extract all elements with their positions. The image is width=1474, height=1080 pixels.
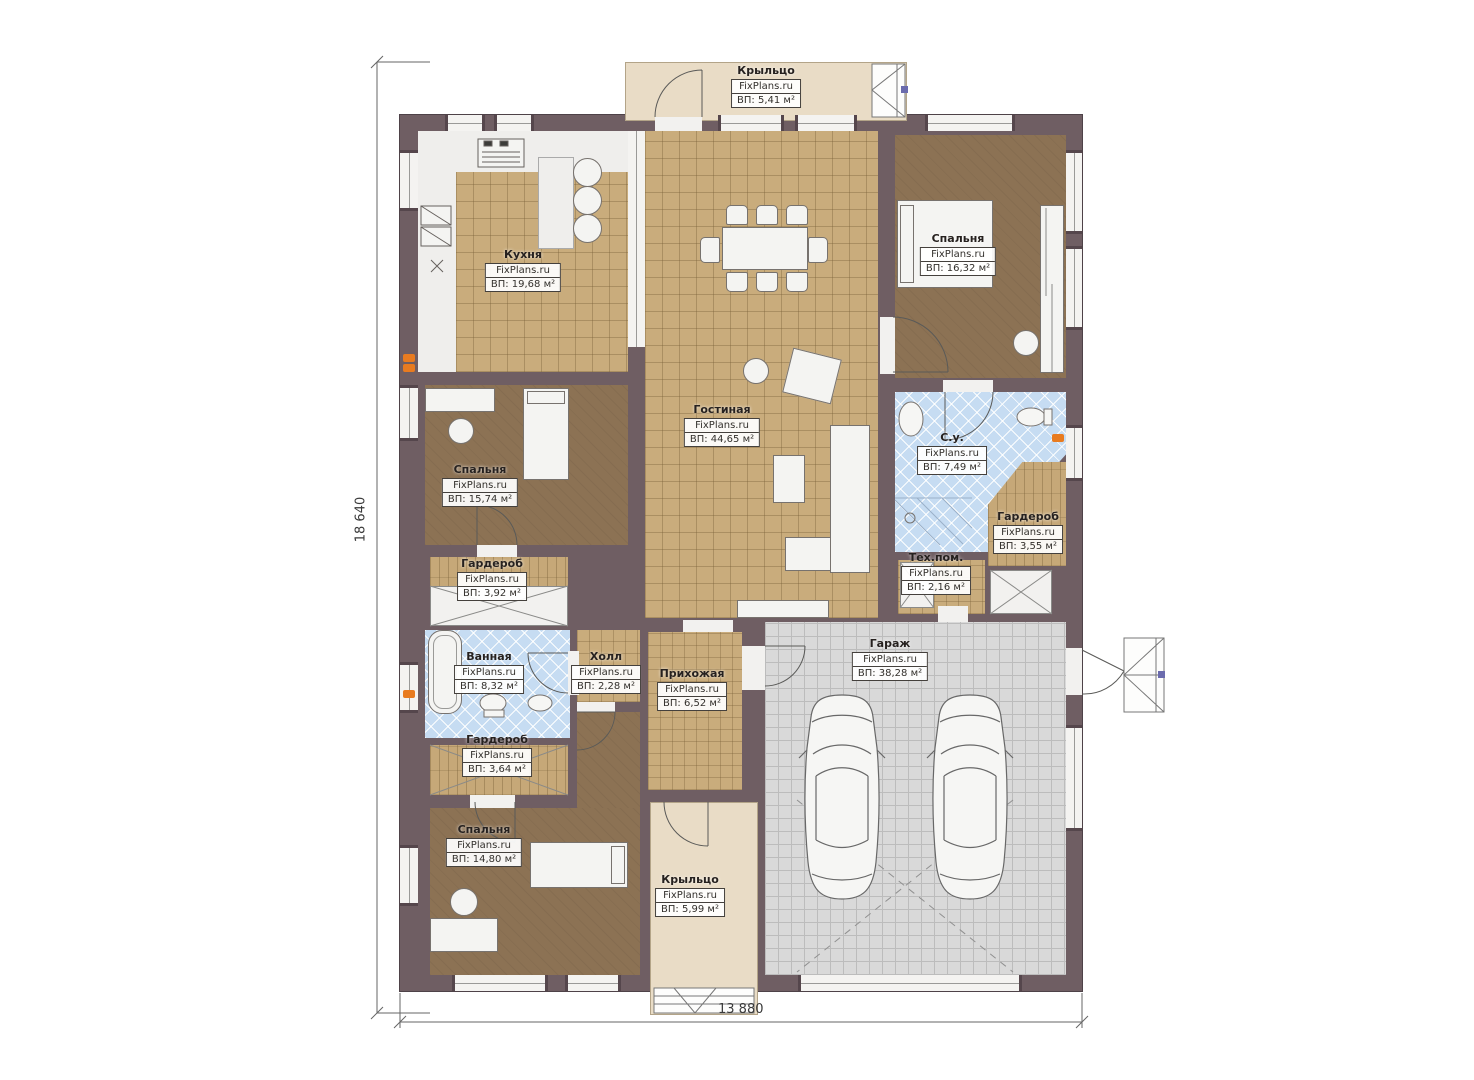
room-area: ВП: 14,80 м² [447,853,521,866]
window [795,115,857,131]
room-name: Спальня [442,463,518,476]
room-label-bathroom-right: С.у. FixPlans.ru ВП: 7,49 м² [917,431,987,475]
garage-door-opening [798,975,1022,991]
window [1066,150,1082,234]
room-info-box: FixPlans.ru ВП: 8,32 м² [454,665,524,694]
room-label-porch-bottom: Крыльцо FixPlans.ru ВП: 5,99 м² [655,873,725,917]
bedroom-right-closet [1040,205,1064,373]
room-label-garage: Гараж FixPlans.ru ВП: 38,28 м² [852,637,928,681]
chair [726,272,748,292]
room-info-box: FixPlans.ru ВП: 3,64 м² [462,748,532,777]
site-watermark: FixPlans.ru [572,666,640,680]
floor-plan: Крыльцо FixPlans.ru ВП: 5,41 м² Кухня Fi… [0,0,1474,1080]
passage-living-entry [683,620,733,632]
room-area: ВП: 8,32 м² [455,680,523,693]
site-watermark: FixPlans.ru [921,248,995,262]
pillow [527,391,565,404]
window [565,975,621,991]
room-info-box: FixPlans.ru ВП: 16,32 м² [920,247,996,276]
site-watermark: FixPlans.ru [918,447,986,461]
kitchen-living-partition [628,131,645,347]
room-area: ВП: 5,41 м² [732,94,800,107]
window [925,115,1015,131]
tv-stand [737,600,829,618]
site-watermark: FixPlans.ru [443,479,517,493]
room-name: С.у. [917,431,987,444]
door-gap-bedroom-bottom [470,795,515,808]
window [400,385,418,441]
room-area: ВП: 15,74 м² [443,493,517,506]
room-area: ВП: 7,49 м² [918,461,986,474]
door-gap-bedroom-left [477,545,517,557]
room-area: ВП: 3,92 м² [458,587,526,600]
room-label-wardrobe-upper: Гардероб FixPlans.ru ВП: 3,92 м² [457,557,527,601]
sofa-chaise [785,537,831,571]
room-info-box: FixPlans.ru ВП: 5,41 м² [731,79,801,108]
room-name: Гараж [852,637,928,650]
corridor-floor [577,712,640,808]
marker-icon [901,86,908,93]
room-area: ВП: 5,99 м² [656,903,724,916]
door-gap-garage-exterior [1066,648,1082,695]
bed [530,842,628,888]
room-area: ВП: 19,68 м² [486,278,560,291]
stool [1013,330,1039,356]
window [1066,725,1082,831]
room-label-bedroom-left: Спальня FixPlans.ru ВП: 15,74 м² [442,463,518,507]
window [400,150,418,211]
door-gap-bedroom-right [880,317,895,374]
room-label-wardrobe-lower: Гардероб FixPlans.ru ВП: 3,64 м² [462,733,532,777]
bed [523,388,569,480]
side-table [743,358,769,384]
entry-hall-floor [648,632,742,790]
room-name: Гардероб [462,733,532,746]
pillow [611,846,625,884]
site-watermark: FixPlans.ru [853,653,927,667]
room-name: Гостиная [684,403,760,416]
room-name: Холл [571,650,641,663]
room-area: ВП: 2,28 м² [572,680,640,693]
room-area: ВП: 3,64 м² [463,763,531,776]
site-watermark: FixPlans.ru [656,889,724,903]
room-name: Крыльцо [655,873,725,886]
room-info-box: FixPlans.ru ВП: 6,52 м² [657,682,727,711]
dimension-width: 13 880 [718,1002,764,1017]
chair [808,237,828,263]
site-watermark: FixPlans.ru [902,567,970,581]
window [445,115,485,131]
door-gap-bathroom-right [943,380,993,392]
door-gap-hall [577,702,615,712]
room-area: ВП: 2,16 м² [902,581,970,594]
room-label-porch-top: Крыльцо FixPlans.ru ВП: 5,41 м² [731,64,801,108]
wardrobe-right-closet [990,570,1052,614]
outlet-icon [403,690,415,698]
room-label-bedroom-right: Спальня FixPlans.ru ВП: 16,32 м² [920,232,996,276]
site-watermark: FixPlans.ru [486,264,560,278]
site-watermark: FixPlans.ru [732,80,800,94]
chair [756,205,778,225]
room-name: Тех.пом. [901,551,971,564]
kitchen-bar-counter [538,157,574,249]
room-name: Спальня [446,823,522,836]
sofa [830,425,870,573]
site-watermark: FixPlans.ru [458,573,526,587]
site-watermark: FixPlans.ru [455,666,523,680]
room-info-box: FixPlans.ru ВП: 14,80 м² [446,838,522,867]
window [400,845,418,906]
outlet-icon [403,354,415,362]
room-label-living: Гостиная FixPlans.ru ВП: 44,65 м² [684,403,760,447]
window [1066,425,1082,481]
room-name: Ванная [454,650,524,663]
bar-stool [573,158,602,187]
room-label-tech-room: Тех.пом. FixPlans.ru ВП: 2,16 м² [901,551,971,595]
room-info-box: FixPlans.ru ВП: 2,16 м² [901,566,971,595]
site-watermark: FixPlans.ru [463,749,531,763]
room-label-entry-hall: Прихожая FixPlans.ru ВП: 6,52 м² [657,667,727,711]
room-info-box: FixPlans.ru ВП: 44,65 м² [684,418,760,447]
chair [726,205,748,225]
bar-stool [573,214,602,243]
room-info-box: FixPlans.ru ВП: 5,99 м² [655,888,725,917]
outlet-icon [403,364,415,372]
room-area: ВП: 44,65 м² [685,433,759,446]
bar-stool [573,186,602,215]
room-area: ВП: 38,28 м² [853,667,927,680]
pillow [900,205,914,283]
room-info-box: FixPlans.ru ВП: 15,74 м² [442,478,518,507]
site-watermark: FixPlans.ru [685,419,759,433]
room-name: Спальня [920,232,996,245]
outlet-icon [1052,434,1064,442]
site-watermark: FixPlans.ru [994,526,1062,540]
room-info-box: FixPlans.ru ВП: 3,92 м² [457,572,527,601]
room-label-kitchen: Кухня FixPlans.ru ВП: 19,68 м² [485,248,561,292]
door-gap-tech [938,606,968,622]
desk [425,388,495,412]
room-name: Гардероб [457,557,527,570]
site-watermark: FixPlans.ru [447,839,521,853]
room-name: Кухня [485,248,561,261]
room-label-hall: Холл FixPlans.ru ВП: 2,28 м² [571,650,641,694]
stool [450,888,478,916]
door-gap-porch-top [655,117,702,131]
room-name: Прихожая [657,667,727,680]
door-gap-garage-inner [742,646,765,690]
window [400,662,418,713]
room-name: Гардероб [993,510,1063,523]
room-info-box: FixPlans.ru ВП: 2,28 м² [571,665,641,694]
chair [756,272,778,292]
room-label-bathroom-left: Ванная FixPlans.ru ВП: 8,32 м² [454,650,524,694]
desk [430,918,498,952]
room-info-box: FixPlans.ru ВП: 7,49 м² [917,446,987,475]
dining-table [722,227,808,270]
room-info-box: FixPlans.ru ВП: 3,55 м² [993,525,1063,554]
dimension-height: 18 640 [353,497,368,543]
chair [786,205,808,225]
room-info-box: FixPlans.ru ВП: 19,68 м² [485,263,561,292]
window [452,975,548,991]
site-watermark: FixPlans.ru [658,683,726,697]
room-label-wardrobe-right: Гардероб FixPlans.ru ВП: 3,55 м² [993,510,1063,554]
room-name: Крыльцо [731,64,801,77]
window [718,115,784,131]
room-area: ВП: 6,52 м² [658,697,726,710]
chair [786,272,808,292]
marker-icon [1158,671,1165,678]
room-area: ВП: 16,32 м² [921,262,995,275]
chair [700,237,720,263]
window [494,115,534,131]
chair [448,418,474,444]
room-label-bedroom-bottom: Спальня FixPlans.ru ВП: 14,80 м² [446,823,522,867]
room-info-box: FixPlans.ru ВП: 38,28 м² [852,652,928,681]
room-area: ВП: 3,55 м² [994,540,1062,553]
window [1066,246,1082,330]
coffee-table [773,455,805,503]
